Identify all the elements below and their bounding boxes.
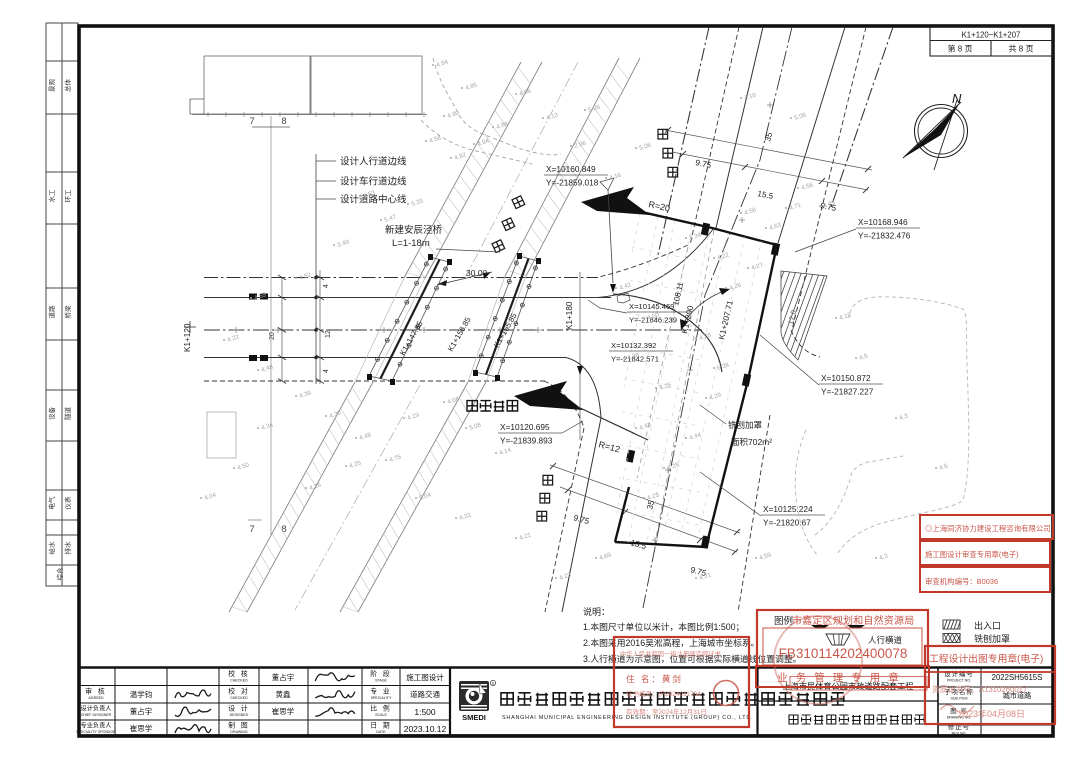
svg-text:7: 7 xyxy=(249,116,254,127)
svg-text:证书编号：沪2024011704: 证书编号：沪2024011704 xyxy=(626,689,701,698)
svg-text:专业负责人: 专业负责人 xyxy=(81,722,112,730)
svg-text:铣刨加罩: 铣刨加罩 xyxy=(974,633,1010,644)
svg-text:排水: 排水 xyxy=(63,541,72,555)
svg-text:2023.10.12: 2023.10.12 xyxy=(404,724,447,734)
svg-text:说明：: 说明： xyxy=(583,606,610,617)
svg-text:Y=-21859.018: Y=-21859.018 xyxy=(546,178,599,188)
svg-text:道路交通: 道路交通 xyxy=(410,689,440,699)
svg-text:设计人行道边线: 设计人行道边线 xyxy=(340,156,407,168)
svg-text:X=10125.224: X=10125.224 xyxy=(763,504,813,514)
svg-text:2022SH5615S: 2022SH5615S xyxy=(992,673,1043,682)
svg-text:SPECIALITY: SPECIALITY xyxy=(371,696,392,700)
svg-text:面积702m²: 面积702m² xyxy=(731,437,772,447)
svg-text:CHECKED: CHECKED xyxy=(230,696,248,700)
svg-text:12: 12 xyxy=(325,330,332,338)
svg-text:8: 8 xyxy=(281,116,286,127)
svg-text:Y=-21832.476: Y=-21832.476 xyxy=(858,231,911,241)
svg-text:设计车行道边线: 设计车行道边线 xyxy=(340,176,407,188)
svg-text:人行横道: 人行横道 xyxy=(868,635,903,645)
svg-text:审查机构编号：B0036: 审查机构编号：B0036 xyxy=(925,577,998,586)
svg-text:桥梁: 桥梁 xyxy=(63,305,72,319)
svg-text:水工: 水工 xyxy=(47,189,56,203)
svg-text:SMEDI: SMEDI xyxy=(462,713,486,722)
svg-text:设计负责人: 设计负责人 xyxy=(81,705,112,713)
svg-text:SCALE: SCALE xyxy=(375,713,387,717)
svg-text:20: 20 xyxy=(269,332,276,340)
svg-text:R: R xyxy=(492,682,495,686)
svg-text:仪表: 仪表 xyxy=(63,496,72,510)
svg-text:PROJECT NO.: PROJECT NO. xyxy=(947,679,971,683)
svg-text:有效期：至2024年12月31日: 有效期：至2024年12月31日 xyxy=(626,707,707,716)
svg-text:住 名：黄剑: 住 名：黄剑 xyxy=(626,674,683,684)
svg-text:设 计: 设 计 xyxy=(228,704,249,713)
svg-text:业务管理专用章: 业务管理专用章 xyxy=(777,671,907,684)
svg-text:DRAWING: DRAWING xyxy=(230,730,247,734)
svg-text:AGREED: AGREED xyxy=(88,696,104,700)
svg-text:K1+180: K1+180 xyxy=(565,301,574,330)
svg-text:比 例: 比 例 xyxy=(370,704,391,713)
svg-text:环工: 环工 xyxy=(64,189,72,203)
svg-text:REV NO.: REV NO. xyxy=(952,732,967,736)
svg-text:X=10168.946: X=10168.946 xyxy=(858,217,908,227)
svg-text:7: 7 xyxy=(249,524,254,535)
svg-text:铣刨加罩: 铣刨加罩 xyxy=(728,420,763,430)
svg-text:设备: 设备 xyxy=(47,407,56,421)
svg-text:X=10132.392: X=10132.392 xyxy=(611,341,656,350)
svg-text:校 核: 校 核 xyxy=(228,669,249,678)
svg-text:工程设计出图专用章(电子): 工程设计出图专用章(电子) xyxy=(929,652,1043,665)
svg-text:N: N xyxy=(952,91,962,106)
svg-text:FB310114202400078: FB310114202400078 xyxy=(779,646,908,661)
svg-text:景观: 景观 xyxy=(48,79,56,93)
svg-text:日 期: 日 期 xyxy=(370,722,391,730)
svg-text:专 业: 专 业 xyxy=(370,687,391,696)
svg-text:隧道: 隧道 xyxy=(63,407,72,421)
svg-text:新建安辰泾桥: 新建安辰泾桥 xyxy=(385,224,443,236)
svg-text:中华人民共和国一级注册建造师证书: 中华人民共和国一级注册建造师证书 xyxy=(620,649,721,658)
svg-text:K1+120: K1+120 xyxy=(183,323,192,352)
svg-text:1:500: 1:500 xyxy=(414,707,436,717)
svg-text:综合: 综合 xyxy=(55,567,64,581)
svg-text:温学钧: 温学钧 xyxy=(130,689,153,699)
svg-text:CHECKED: CHECKED xyxy=(230,679,248,683)
svg-text:制 图: 制 图 xyxy=(228,721,249,730)
svg-text:董占宇: 董占宇 xyxy=(130,706,153,716)
svg-text:4: 4 xyxy=(323,369,330,373)
svg-text:第 8 页: 第 8 页 xyxy=(948,44,973,54)
svg-text:共 8 页: 共 8 页 xyxy=(1009,45,1034,54)
svg-text:出入口: 出入口 xyxy=(974,620,1001,631)
svg-text:2023年04月08日: 2023年04月08日 xyxy=(958,708,1025,719)
svg-text:SUB ITEM: SUB ITEM xyxy=(951,697,968,701)
svg-text:施工图设计: 施工图设计 xyxy=(406,672,444,682)
svg-text:CHIEF DESIGNER: CHIEF DESIGNER xyxy=(81,713,112,717)
svg-text:道路: 道路 xyxy=(47,305,56,319)
svg-text:4: 4 xyxy=(323,284,330,288)
svg-text:X=10160.849: X=10160.849 xyxy=(546,164,596,174)
svg-text:审 核: 审 核 xyxy=(85,687,106,696)
svg-text:K1+120~K1+207: K1+120~K1+207 xyxy=(962,31,1021,40)
svg-text:X=10150.872: X=10150.872 xyxy=(821,373,871,383)
svg-text:电气: 电气 xyxy=(47,496,56,510)
svg-text:施工图设计审查专用章(电子): 施工图设计审查专用章(电子) xyxy=(925,550,1019,559)
svg-text:SPECIALITY SPONSOR: SPECIALITY SPONSOR xyxy=(76,730,116,734)
svg-text:◎上海同济协力建设工程咨询有限公司: ◎上海同济协力建设工程咨询有限公司 xyxy=(925,524,1051,533)
svg-text:DESIGNED: DESIGNED xyxy=(230,713,249,717)
svg-text:黄鑫: 黄鑫 xyxy=(276,689,291,699)
svg-text:崔思学: 崔思学 xyxy=(272,706,295,716)
svg-text:Y=-21820.67: Y=-21820.67 xyxy=(763,518,811,528)
svg-text:2.本图采用2016吴淞高程，上海城市坐标系。: 2.本图采用2016吴淞高程，上海城市坐标系。 xyxy=(583,637,759,648)
svg-text:市嘉定区规划和自然资源局: 市嘉定区规划和自然资源局 xyxy=(792,614,914,627)
svg-text:STAGE: STAGE xyxy=(375,679,388,683)
svg-text:校 对: 校 对 xyxy=(228,687,249,696)
svg-text:DATE: DATE xyxy=(376,730,386,734)
svg-text:崔思学: 崔思学 xyxy=(130,723,153,733)
svg-text:Y=-21827.227: Y=-21827.227 xyxy=(821,387,874,397)
svg-text:给水: 给水 xyxy=(47,541,56,555)
svg-text:阶 段: 阶 段 xyxy=(370,669,391,678)
svg-text:L=1-18m: L=1-18m xyxy=(392,238,430,249)
svg-text:Y=-21839.893: Y=-21839.893 xyxy=(500,436,553,446)
svg-text:设计编号: 设计编号 xyxy=(944,669,974,678)
svg-text:资质证书号：A1310260017: 资质证书号：A1310260017 xyxy=(932,684,1027,694)
svg-text:X=10145.469: X=10145.469 xyxy=(629,302,674,311)
svg-text:董占宇: 董占宇 xyxy=(272,672,295,682)
svg-text:1.本图尺寸单位以米计，本图比例1:500；: 1.本图尺寸单位以米计，本图比例1:500； xyxy=(583,621,744,632)
svg-text:X=10120.695: X=10120.695 xyxy=(500,422,550,432)
svg-text:总体: 总体 xyxy=(63,79,72,93)
